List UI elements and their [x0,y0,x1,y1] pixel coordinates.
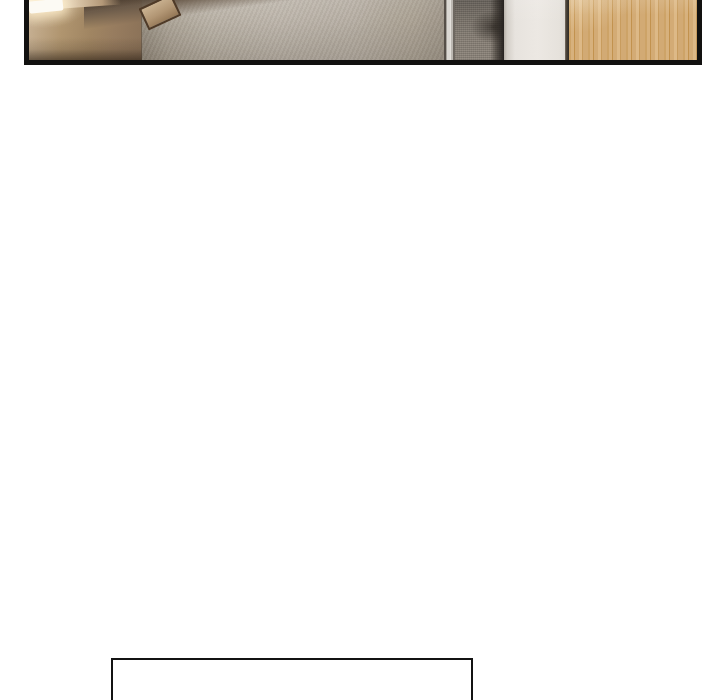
comic-page [0,0,720,700]
dark-pillar [455,0,504,60]
white-wall-strip [504,0,565,60]
wood-wall-upper-shadow [84,0,299,60]
glass-partition-edge [444,0,455,60]
comic-panel-top [24,0,702,65]
interior-scene [29,0,697,60]
comic-panel-bottom-empty [111,658,473,700]
oak-cabinet-panel [569,0,697,60]
